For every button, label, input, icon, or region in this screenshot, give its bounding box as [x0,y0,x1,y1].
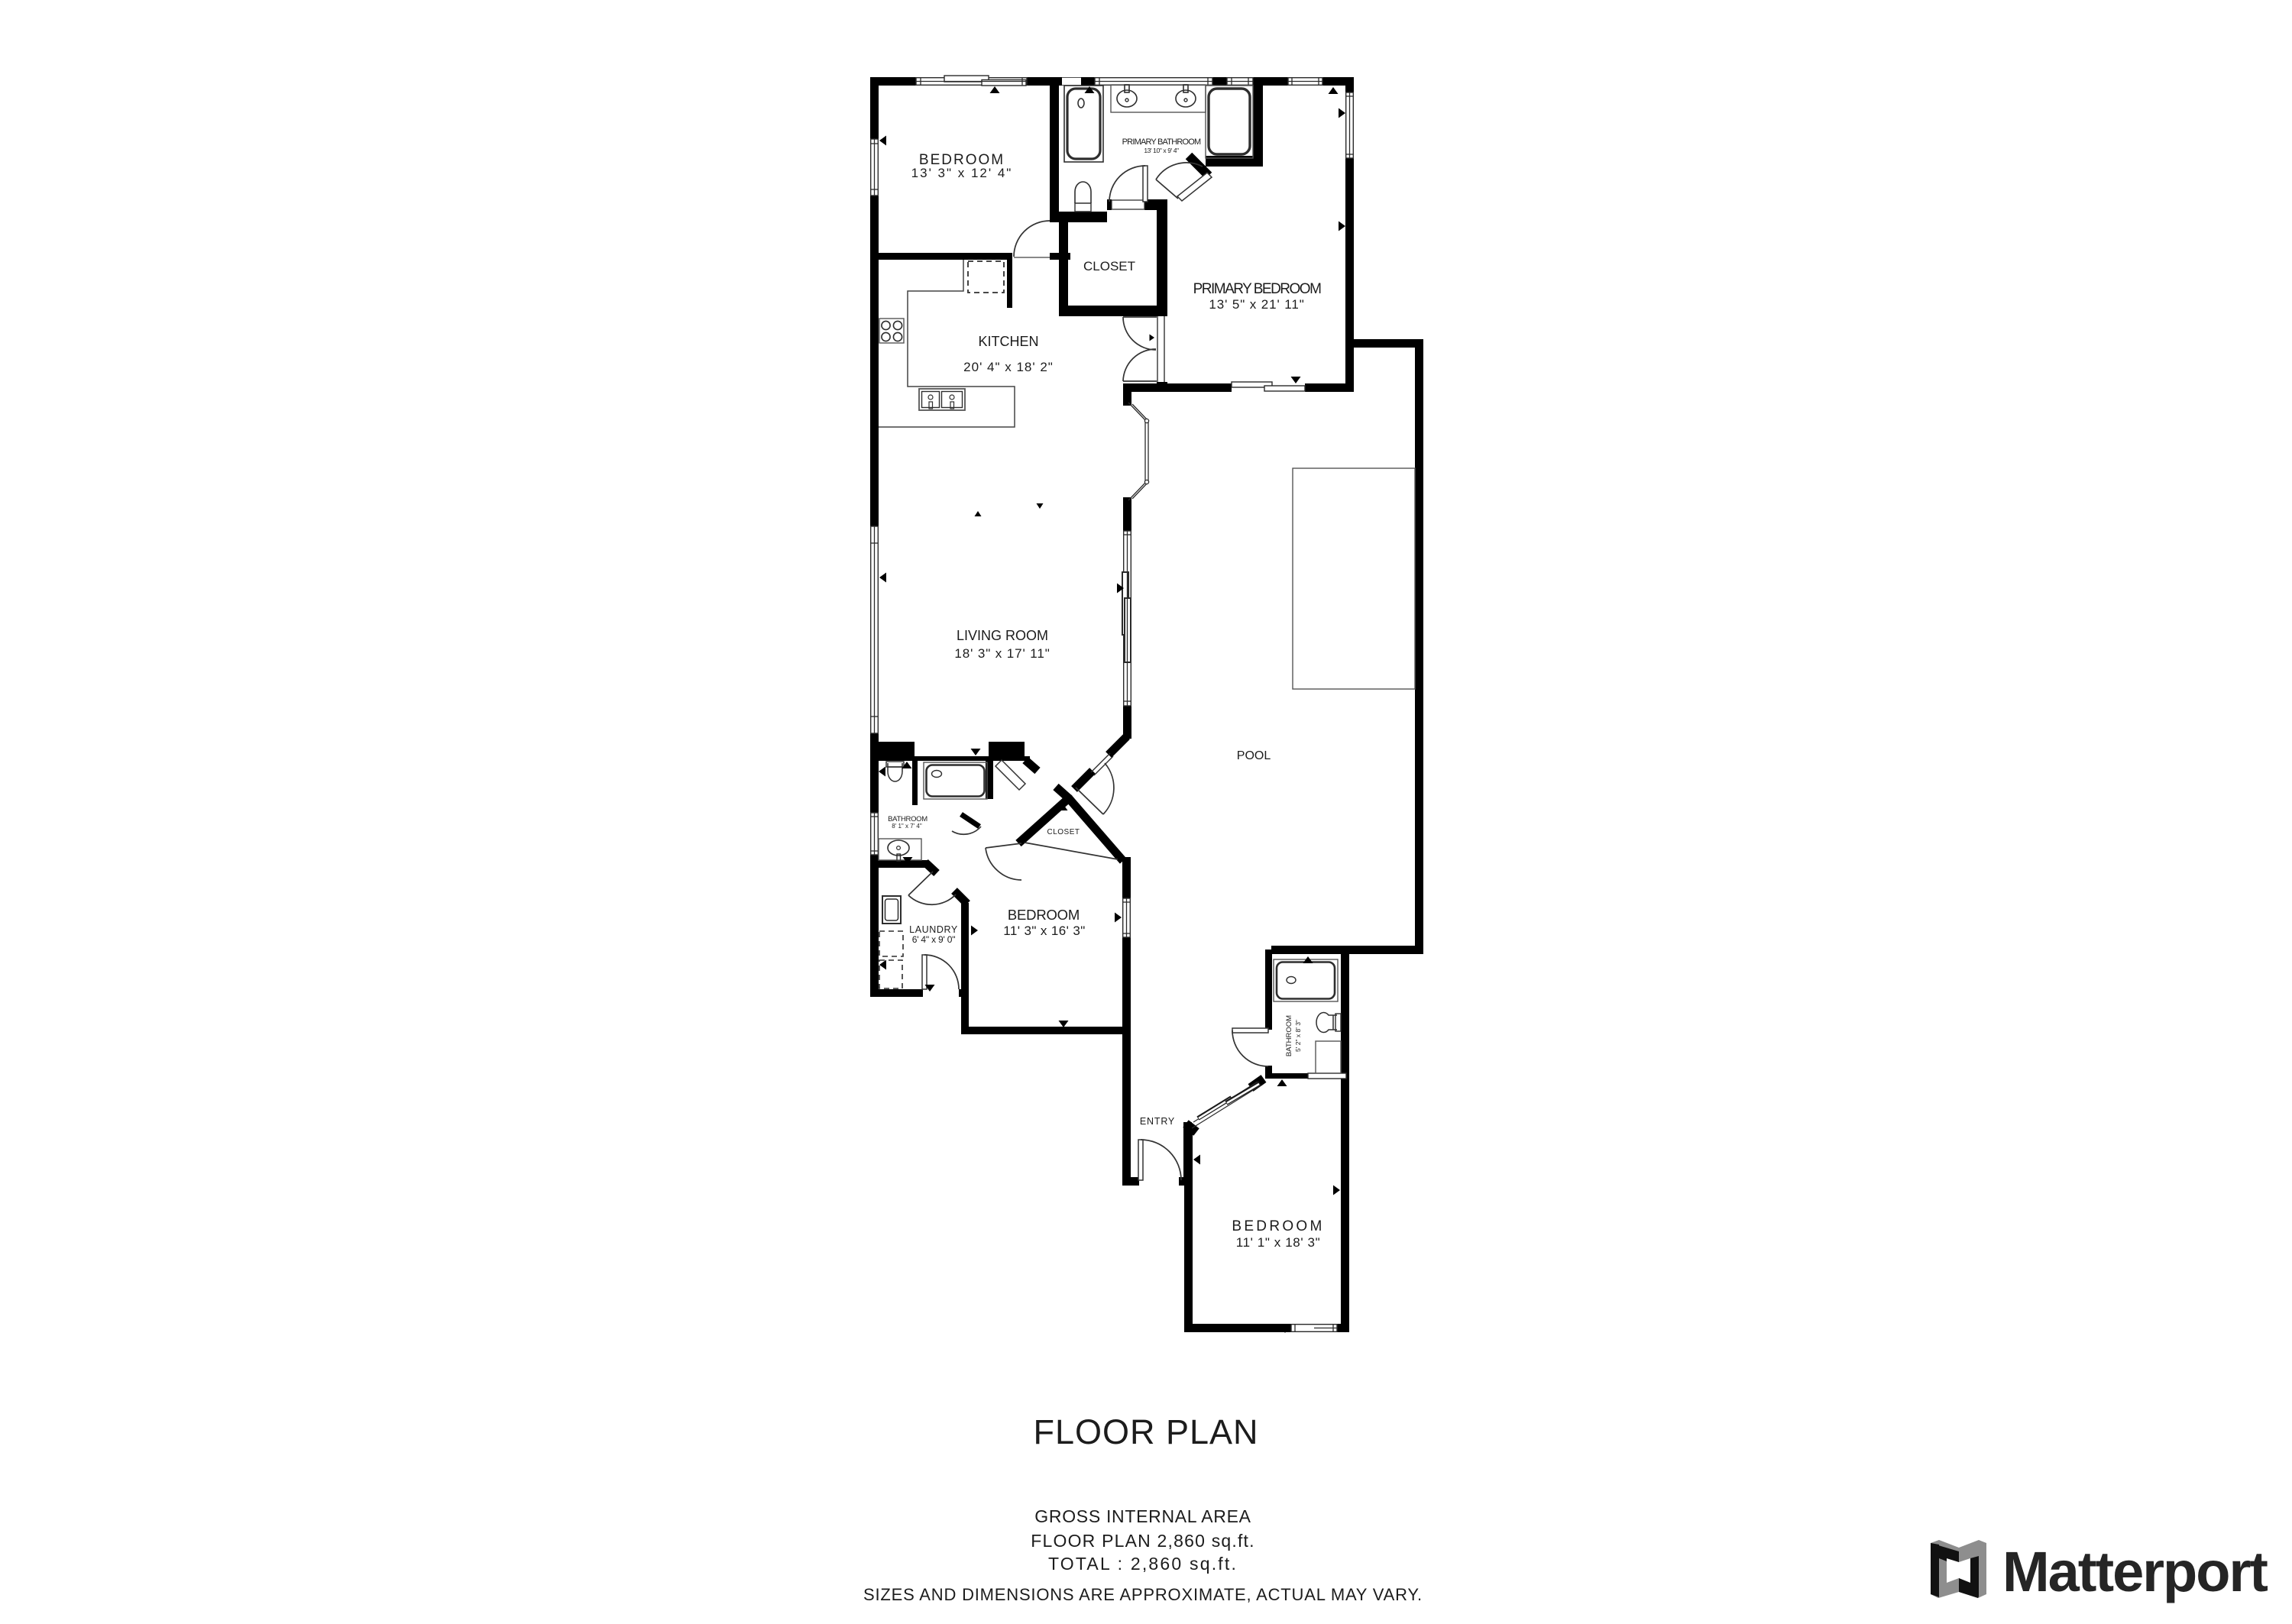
svg-text:TOTAL : 2,860 sq.ft.: TOTAL : 2,860 sq.ft. [1048,1554,1238,1574]
svg-text:Matterport: Matterport [2002,1540,2268,1603]
svg-text:11' 1" x 18' 3": 11' 1" x 18' 3" [1236,1235,1320,1250]
svg-text:KITCHEN: KITCHEN [978,334,1038,349]
svg-text:CLOSET: CLOSET [1047,828,1080,836]
svg-text:20' 4" x 18' 2": 20' 4" x 18' 2" [963,360,1054,374]
svg-text:SIZES AND DIMENSIONS ARE APPRO: SIZES AND DIMENSIONS ARE APPROXIMATE, AC… [863,1585,1423,1604]
svg-text:PRIMARY BEDROOM: PRIMARY BEDROOM [1193,281,1322,297]
svg-text:11' 3" x 16' 3": 11' 3" x 16' 3" [1003,924,1085,938]
svg-text:13' 3" x 12' 4": 13' 3" x 12' 4" [911,166,1013,180]
svg-text:6' 4" x 9' 0": 6' 4" x 9' 0" [912,934,956,945]
svg-text:ENTRY: ENTRY [1140,1116,1175,1127]
svg-text:8' 1" x 7' 4": 8' 1" x 7' 4" [892,823,922,830]
svg-text:BATHROOM: BATHROOM [1285,1015,1293,1056]
svg-text:LAUNDRY: LAUNDRY [909,924,958,935]
svg-text:CLOSET: CLOSET [1083,259,1135,273]
svg-text:LIVING ROOM: LIVING ROOM [957,628,1048,643]
svg-text:BEDROOM: BEDROOM [1008,907,1080,923]
svg-text:5' 2" x 8' 3": 5' 2" x 8' 3" [1294,1020,1302,1052]
svg-text:18' 3" x 17' 11": 18' 3" x 17' 11" [954,646,1050,661]
svg-text:PRIMARY BATHROOM: PRIMARY BATHROOM [1122,137,1201,147]
svg-text:BEDROOM: BEDROOM [1232,1218,1324,1234]
svg-text:13' 10" x 9' 4": 13' 10" x 9' 4" [1144,147,1179,154]
svg-text:13' 5" x 21' 11": 13' 5" x 21' 11" [1209,297,1304,312]
svg-text:FLOOR PLAN: FLOOR PLAN [1033,1412,1258,1451]
svg-text:FLOOR PLAN 2,860 sq.ft.: FLOOR PLAN 2,860 sq.ft. [1031,1531,1255,1551]
svg-text:POOL: POOL [1237,749,1271,762]
svg-text:GROSS INTERNAL AREA: GROSS INTERNAL AREA [1034,1506,1251,1526]
